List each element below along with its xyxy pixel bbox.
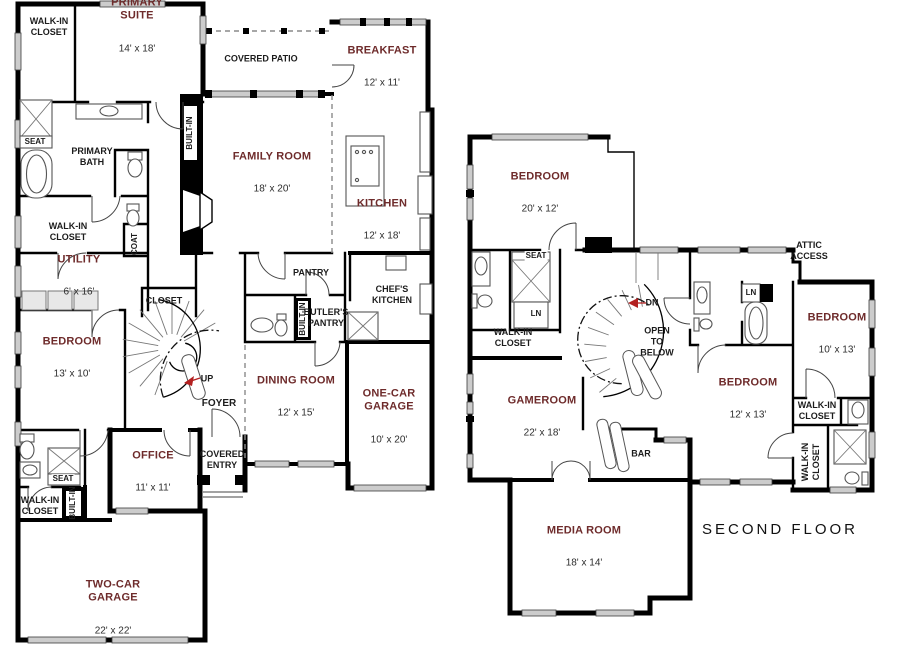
- butlers-built-in-wall: [295, 298, 311, 340]
- second-floor-heavy-interior-walls: [470, 358, 690, 480]
- stairs-up-spiral: [123, 298, 219, 401]
- first-floor-fixtures: [20, 100, 432, 485]
- second-floor-exterior-walls: [470, 137, 872, 613]
- closet-built-in-wall: [62, 487, 85, 520]
- dn-arrow: [628, 298, 646, 308]
- roof-outline: [608, 137, 634, 250]
- second-floor-fixtures: [472, 252, 868, 485]
- second-floor-plan: [466, 134, 875, 616]
- fireplace-wall: [180, 94, 212, 255]
- bar-counter: [596, 418, 630, 472]
- second-floor-windows: [467, 134, 875, 616]
- floor-plan-page: WALK-IN CLOSET PRIMARY SUITE 14' x 18' C…: [0, 0, 900, 647]
- stairs-down-spiral: [578, 253, 664, 401]
- first-floor-plan: [15, 1, 432, 643]
- floor-plan-canvas: [0, 0, 900, 647]
